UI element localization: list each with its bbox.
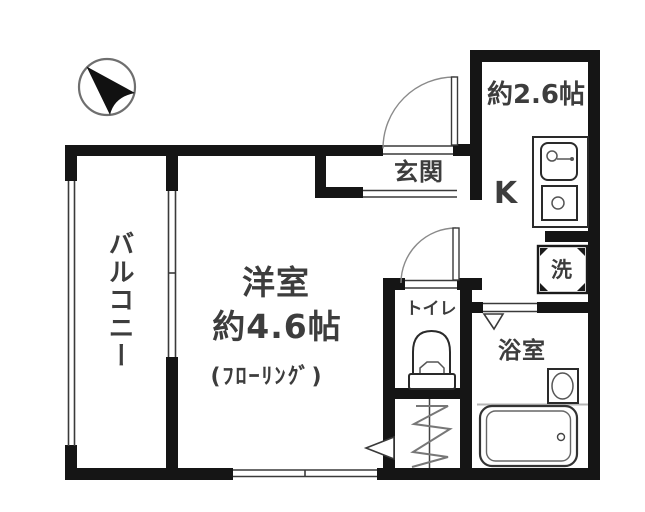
toilet-label: トイレ (406, 300, 457, 320)
room-entry-direction-icon (366, 437, 394, 459)
toilet-icon (409, 331, 455, 389)
bathroom-label: 浴室 (498, 338, 546, 364)
wall-kitchen-top (470, 50, 600, 62)
main-room-name: 洋室 (242, 264, 310, 302)
north-arrow-icon (79, 59, 135, 115)
entrance-door-panel (452, 77, 458, 145)
wall-divider-bottom (166, 357, 178, 480)
wall-top-main (65, 145, 383, 156)
door-arc-icon (401, 228, 456, 283)
bath-door-direction-icon (484, 314, 503, 329)
wall-left-bottom-stub (65, 445, 77, 480)
wall-toilet-right (460, 278, 472, 480)
main-room-floor-note: (ﾌﾛｰﾘﾝｸﾞ) (210, 364, 323, 389)
floorplan: バルコニー 洋室 約4.6帖 (ﾌﾛｰﾘﾝｸﾞ) 玄関 約2.6帖 K 洗 トイ… (0, 0, 645, 512)
kitchen-label: K (494, 177, 518, 212)
wall-bottom-right (377, 468, 600, 480)
bathtub-icon (480, 406, 577, 466)
kitchen-counter (533, 137, 588, 227)
balcony-label: バルコニー (103, 230, 133, 370)
bathroom-fixtures (477, 369, 588, 466)
basin-icon (548, 369, 578, 403)
laundry-label: 洗 (551, 258, 573, 282)
wall-genkan-horizontal (315, 187, 363, 198)
door-arc-icon (383, 77, 455, 149)
floorplan-drawing (0, 0, 645, 512)
kitchen-size-label: 約2.6帖 (487, 81, 585, 111)
wall-right (588, 50, 600, 480)
toilet-door (401, 228, 459, 283)
wall-bottom-left (65, 468, 233, 480)
wall-left-top-stub (65, 145, 77, 181)
main-room-size: 約4.6帖 (212, 308, 341, 346)
entrance-door (383, 77, 458, 149)
entrance-label: 玄関 (394, 159, 444, 187)
toilet-door-panel (453, 228, 459, 280)
sink-icon (541, 143, 577, 180)
stove-icon (542, 186, 577, 220)
wall-kitchen-left (470, 50, 482, 200)
wall-bath-top-right (537, 302, 600, 313)
wall-counter-stub (545, 231, 600, 242)
wall-divider-top-stub (166, 145, 178, 191)
ladder-icon (412, 399, 450, 468)
